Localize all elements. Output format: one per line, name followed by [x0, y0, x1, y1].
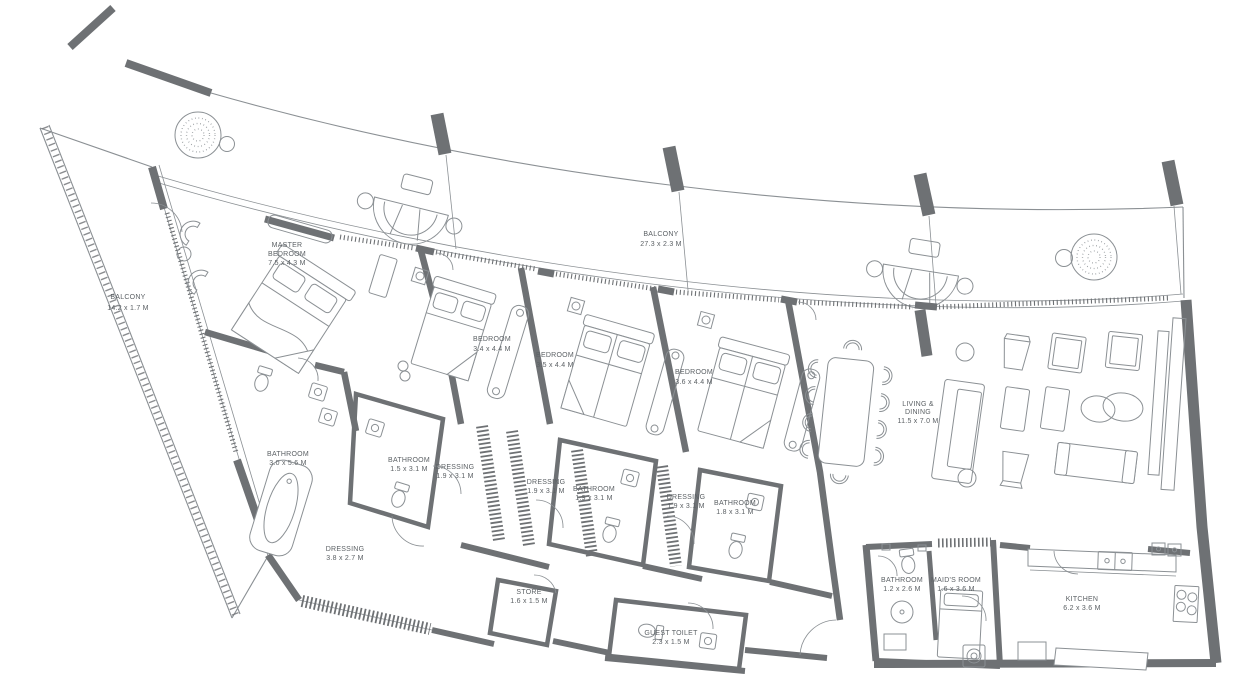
living-sofa — [931, 379, 985, 484]
maid-divider-wall — [929, 551, 936, 640]
side-table — [956, 343, 974, 361]
plan-line — [350, 164, 471, 256]
plan-line — [1177, 590, 1186, 599]
plan-line — [830, 474, 849, 485]
room-label-bedroom-4: BEDROOM 3.6 x 4.4 M — [675, 369, 713, 386]
bedroom3-wall — [521, 268, 550, 424]
plan-line — [844, 339, 863, 350]
room-name: KITCHEN — [1066, 596, 1098, 603]
room-label-living-dining: LIVING & DINING 11.5 x 7.0 M — [897, 401, 938, 425]
room-name: BATHROOM — [881, 577, 923, 584]
bedroom4-bed — [696, 336, 791, 448]
balcony-right-edge — [1183, 207, 1184, 298]
balcony-door-arc — [798, 302, 816, 320]
room-dimensions: 1.2 x 2.6 M — [883, 586, 920, 593]
living-wall-stub — [920, 310, 927, 356]
room-name: DRESSING — [436, 464, 475, 471]
room-dimensions: 7.5 x 4.3 M — [268, 260, 305, 267]
toilet-icon — [727, 533, 746, 560]
column-stub — [669, 147, 678, 191]
armchair — [1000, 333, 1030, 370]
room-dimensions: 3.5 x 4.4 M — [536, 362, 573, 369]
maid-wall — [866, 545, 876, 661]
room-name: BATHROOM — [388, 457, 430, 464]
balcony-dividers — [446, 155, 1181, 305]
plan-line — [1071, 234, 1117, 280]
room-name: BEDROOM — [268, 251, 306, 258]
room-label-bathroom-3: BATHROOM 1.9 x 3.1 M — [573, 486, 615, 502]
room-dimensions: 1.9 x 3.1 M — [436, 473, 473, 480]
plan-line — [1187, 606, 1196, 615]
plan-line — [891, 601, 913, 623]
room-name: DRESSING — [667, 494, 706, 501]
tree-icon — [175, 112, 221, 158]
room-name: BATHROOM — [267, 451, 309, 458]
plan-line — [671, 351, 680, 360]
sink-icon — [699, 632, 717, 649]
entry-door-arc — [800, 620, 836, 655]
plan-line — [1176, 602, 1185, 611]
balcony-railing-hatch — [45, 127, 236, 616]
plan-line — [874, 447, 885, 466]
room-name: BATHROOM — [714, 500, 756, 507]
room-label-balcony-top: BALCONY 27.3 x 2.3 M — [640, 231, 682, 248]
room-name: LIVING & — [902, 401, 934, 408]
room-dimensions: 3.4 x 4.4 M — [473, 346, 510, 353]
room-name: BALCONY — [110, 294, 145, 301]
room-dimensions: 1.5 x 3.1 M — [390, 466, 427, 473]
plan-line — [799, 439, 810, 458]
plan-line — [492, 387, 501, 396]
plan-line — [175, 112, 221, 158]
balcony-door-arc — [436, 253, 453, 270]
coffee-table — [1000, 387, 1030, 432]
coffee-table — [1040, 387, 1070, 432]
shower-drain — [891, 601, 913, 623]
plan-line — [697, 311, 714, 328]
room-label-balcony-left: BALCONY 14.2 x 1.7 M — [107, 294, 149, 312]
bottom-wall — [432, 630, 827, 671]
tree-icon — [1071, 234, 1117, 280]
room-name: BATHROOM — [573, 486, 615, 493]
master-armchairs — [175, 216, 208, 294]
door-arc — [878, 556, 897, 576]
room-label-master-dressing: DRESSING 3.8 x 2.7 M — [326, 546, 365, 562]
plan-line — [416, 272, 424, 280]
room-dimensions: 2.3 x 1.5 M — [652, 639, 689, 646]
room-dimensions: 1.9 x 3.1 M — [527, 488, 564, 495]
room-label-kitchen: KITCHEN 6.2 x 3.6 M — [1063, 596, 1100, 612]
room-dimensions: 14.2 x 1.7 M — [107, 305, 149, 312]
plan-line — [1000, 338, 1030, 370]
room-label-master-bedroom: MASTER BEDROOM 7.5 x 4.3 M — [268, 242, 306, 267]
room-dimensions: 1.8 x 3.1 M — [716, 509, 753, 516]
room-name: MAID'S ROOM — [931, 577, 981, 584]
balcony-outer-edge — [211, 93, 1183, 210]
armchair — [998, 451, 1028, 488]
plan-line — [1161, 318, 1186, 490]
room-dimensions: 27.3 x 2.3 M — [640, 241, 682, 248]
room-dimensions: 1.6 x 3.6 M — [937, 586, 974, 593]
room-label-guest-toilet: GUEST TOILET 2.3 x 1.5 M — [644, 630, 698, 646]
bedroom2-bed — [409, 276, 497, 382]
room-dimensions: 3.0 x 5.6 M — [269, 460, 306, 467]
round-table — [1101, 390, 1145, 423]
room-label-dressing-3: DRESSING 1.9 x 3.1 M — [527, 479, 566, 495]
plan-line — [882, 367, 893, 386]
dining-table — [818, 357, 875, 467]
toilet-icon — [252, 366, 273, 394]
bedroom4-side-table — [697, 311, 714, 328]
wardrobe-comb — [938, 542, 991, 543]
cooktop-hob — [1173, 585, 1199, 622]
plan-line — [807, 359, 818, 378]
room-name: BEDROOM — [536, 352, 574, 359]
plan-line — [516, 308, 525, 317]
media-wall — [1147, 317, 1186, 490]
bedroom3-bed — [559, 314, 655, 427]
room-label-dressing-2: DRESSING 1.9 x 3.1 M — [436, 464, 475, 480]
left-balcony-outline — [40, 125, 268, 618]
plan-line — [1188, 593, 1197, 602]
room-name: GUEST TOILET — [644, 630, 698, 637]
planter-icon — [1056, 250, 1073, 267]
room-label-maids-room: MAID'S ROOM 1.6 x 3.6 M — [931, 577, 981, 593]
planter-icon — [220, 137, 235, 152]
sink-icon — [318, 407, 338, 426]
room-dimensions: 1.9 x 3.1 M — [575, 495, 612, 502]
armchair-square — [1048, 333, 1087, 373]
toilet-icon — [389, 482, 410, 510]
plan-line — [879, 394, 890, 413]
bedroom3-side-table — [567, 297, 584, 314]
sink-icon — [365, 418, 385, 437]
kitchen-cabinet — [1018, 642, 1046, 660]
armchair-square — [1105, 331, 1143, 370]
room-dimensions: 1.6 x 1.5 M — [510, 598, 547, 605]
room-label-master-bathroom: BATHROOM 3.0 x 5.6 M — [267, 451, 309, 467]
plan-line — [183, 265, 208, 294]
room-dimensions: 3.8 x 2.7 M — [326, 555, 363, 562]
bathroom-3-block — [549, 440, 656, 565]
bathroom-4-block — [689, 470, 781, 581]
entry-cabinet — [884, 634, 906, 650]
room-label-bathroom-4: BATHROOM 1.8 x 3.1 M — [714, 500, 756, 516]
wall-segment — [126, 63, 211, 93]
plan-line — [1148, 331, 1169, 475]
outdoor-sofa — [350, 164, 471, 256]
room-name: STORE — [516, 589, 541, 596]
room-label-store: STORE 1.6 x 1.5 M — [510, 589, 547, 605]
room-name: DRESSING — [326, 546, 365, 553]
room-name: MASTER — [272, 242, 303, 249]
plan-line — [944, 593, 979, 607]
toilet-icon — [601, 517, 621, 544]
column-stub — [1168, 161, 1177, 205]
room-dimensions: 11.5 x 7.0 M — [897, 418, 938, 425]
wall-segment — [268, 555, 299, 600]
room-label-bedroom-3: BEDROOM 3.5 x 4.4 M — [536, 352, 574, 369]
floor-plan-sheet: BALCONY 14.2 x 1.7 M MASTER BEDROOM 7.5 … — [0, 0, 1243, 691]
wall-segment — [70, 8, 113, 47]
towel-rail-icon — [400, 371, 410, 381]
sink-icon — [308, 382, 328, 401]
column-stub — [920, 174, 929, 215]
round-table — [1079, 394, 1116, 424]
plan-line — [650, 424, 659, 433]
facade-wall-chunks — [265, 219, 937, 307]
plan-line — [876, 420, 887, 439]
plan-line — [702, 316, 710, 324]
room-label-dressing-4: DRESSING 1.9 x 3.1 M — [667, 494, 706, 510]
window-line — [152, 165, 274, 556]
plan-line — [572, 302, 580, 310]
room-label-maid-bathroom: BATHROOM 1.2 x 2.6 M — [881, 577, 923, 593]
plan-line — [999, 451, 1029, 483]
room-dimensions: 6.2 x 3.6 M — [1063, 605, 1100, 612]
room-dimensions: 3.6 x 4.4 M — [675, 379, 712, 386]
wardrobe-comb — [577, 450, 592, 556]
room-name: DRESSING — [527, 479, 566, 486]
plan-line — [1115, 552, 1116, 570]
room-dimensions: 1.9 x 3.1 M — [667, 503, 704, 510]
toilet-icon — [899, 548, 916, 574]
exterior-and-balconies — [40, 8, 1184, 618]
room-name: DINING — [905, 409, 931, 416]
daybed-bench — [1054, 442, 1137, 484]
sink-icon — [620, 469, 639, 487]
towel-rail-icon — [398, 361, 408, 371]
room-name: BEDROOM — [473, 336, 511, 343]
maid-bed — [937, 589, 983, 659]
floor-plan-drawing: BALCONY 14.2 x 1.7 M MASTER BEDROOM 7.5 … — [0, 0, 1243, 691]
room-name: BEDROOM — [675, 369, 713, 376]
plan-line — [788, 440, 797, 449]
wardrobe-comb — [482, 426, 499, 540]
room-name: BALCONY — [643, 231, 678, 238]
plan-line — [567, 297, 584, 314]
master-dresser — [369, 254, 398, 298]
column-stub — [437, 114, 445, 154]
plan-line — [900, 610, 904, 614]
room-label-bathroom-2: BATHROOM 1.5 x 3.1 M — [388, 457, 430, 473]
